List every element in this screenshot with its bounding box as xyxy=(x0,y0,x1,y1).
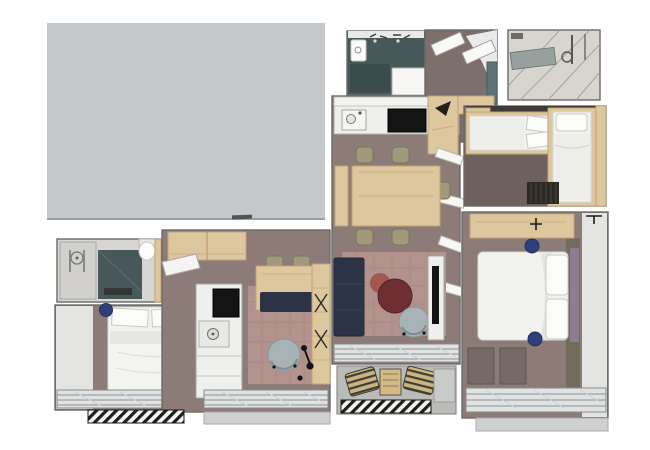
drain-icon xyxy=(212,333,215,336)
room-bathroom-left xyxy=(57,239,161,302)
radiator xyxy=(527,182,559,204)
side-panel xyxy=(596,106,606,206)
window-chair xyxy=(500,348,526,384)
wall-band xyxy=(582,213,607,417)
wardrobe xyxy=(312,264,330,384)
unit-right xyxy=(332,30,608,431)
cover-panel xyxy=(47,23,325,220)
shower-area xyxy=(350,64,390,92)
pouf xyxy=(525,239,539,253)
toilet-icon xyxy=(139,242,155,260)
balcony-right xyxy=(337,366,456,414)
room-kids-bedroom xyxy=(464,106,606,206)
floor-lamp-foot xyxy=(297,375,302,380)
tv-screen xyxy=(432,266,439,324)
exterior-sill xyxy=(476,418,608,431)
floorplan-canvas xyxy=(0,0,650,450)
pillow xyxy=(112,308,149,327)
sink-icon xyxy=(351,40,366,61)
pillow xyxy=(526,116,550,133)
cooktop xyxy=(388,109,426,132)
wardrobe-body xyxy=(312,264,330,384)
double-bed-master xyxy=(478,252,568,340)
awning-hatch xyxy=(88,410,184,423)
master-window xyxy=(466,388,606,412)
pillow xyxy=(546,299,568,339)
awning-hatch xyxy=(341,400,431,413)
chair-foot xyxy=(272,365,275,368)
kitchen-tall-unit xyxy=(196,284,242,398)
oven xyxy=(213,289,239,317)
window-chair xyxy=(468,348,494,384)
chair-foot xyxy=(293,364,296,367)
room-bathroom-right xyxy=(347,31,425,95)
living-window-left xyxy=(204,390,328,408)
pillow xyxy=(526,132,550,149)
living-room xyxy=(334,252,446,348)
tap-icon xyxy=(373,39,377,43)
pouf xyxy=(528,332,542,346)
dining-chair xyxy=(392,229,409,245)
pillow xyxy=(556,114,587,131)
balcony-step xyxy=(434,369,455,402)
bathroom-wall-step xyxy=(392,68,425,95)
coffee-table xyxy=(378,279,412,313)
balcony-table xyxy=(380,369,401,395)
single-bed-horizontal xyxy=(466,112,558,154)
unit-left xyxy=(55,230,330,424)
upper-cabinets xyxy=(168,232,246,260)
pillow xyxy=(546,255,568,295)
exterior-sill xyxy=(204,412,330,424)
vanity xyxy=(60,242,96,299)
room-master-bedroom xyxy=(462,212,608,418)
dining-chair xyxy=(356,229,373,245)
pouf xyxy=(100,304,113,317)
bathroom-wall-band xyxy=(348,31,424,38)
living-window xyxy=(334,344,459,362)
floor-lamp-shade xyxy=(306,362,313,369)
sofa xyxy=(334,258,364,336)
bench-cushion xyxy=(260,292,314,312)
radiator-body xyxy=(527,182,559,204)
tap-icon xyxy=(396,39,400,43)
dining-chair xyxy=(392,147,409,163)
duvet xyxy=(470,118,524,148)
dining-bench xyxy=(335,166,348,226)
room-kitchen-living-left xyxy=(162,230,330,412)
chair-foot xyxy=(402,332,405,335)
headboard xyxy=(570,248,579,342)
dining-chair xyxy=(356,147,373,163)
chair-foot xyxy=(422,331,425,334)
duvet xyxy=(555,134,590,200)
room-shower-utility xyxy=(508,30,600,100)
sink-basin-icon xyxy=(347,115,356,124)
drain-icon xyxy=(76,257,79,260)
floorplan-drawing xyxy=(0,0,650,450)
shower-mat xyxy=(104,288,132,295)
faucet-icon xyxy=(358,111,361,114)
vent-icon xyxy=(511,33,523,39)
side-panel xyxy=(155,239,161,302)
desk-top xyxy=(470,214,574,238)
cover-panel-mark xyxy=(232,215,252,220)
cover-panel-body xyxy=(47,23,325,220)
